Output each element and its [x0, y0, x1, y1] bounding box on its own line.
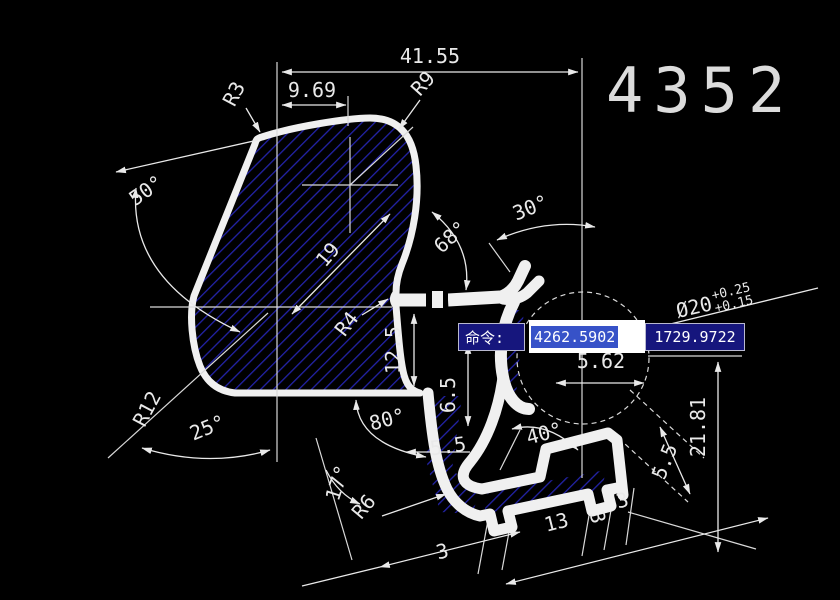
arc-25deg — [142, 448, 270, 459]
dim-80deg: 80° — [367, 403, 408, 436]
ext-2181-bottom — [628, 512, 756, 549]
leader-r3 — [246, 108, 260, 132]
leader-r6 — [382, 494, 446, 516]
dimline-3-left-ext — [302, 567, 380, 586]
dim-25deg: 25° — [186, 410, 228, 446]
dim-5-5: 5.5 — [428, 432, 467, 461]
arm-right — [448, 297, 500, 300]
dim-13: 13 — [542, 508, 571, 537]
command-prompt-label: 命令: — [458, 323, 525, 351]
leg-50deg — [116, 140, 258, 172]
dim-dia20-group: Ø20 +0.25 +0.15 — [673, 280, 754, 325]
dim-9-69: 9.69 — [288, 78, 336, 102]
command-x-input[interactable]: 4262.5902 — [529, 320, 645, 353]
cad-canvas[interactable]: 41.55 9.69 R3 R9 50° 68° 30° 19 R4 12.5 … — [0, 0, 840, 600]
dim-21-81: 21.81 — [686, 397, 710, 457]
leader-r9 — [399, 100, 420, 129]
cad-window: 41.55 9.69 R3 R9 50° 68° 30° 19 R4 12.5 … — [0, 0, 840, 600]
leg-40deg — [500, 430, 520, 470]
dim-68deg: 68° — [429, 216, 472, 258]
dim-41-55: 41.55 — [400, 44, 460, 68]
dim-30deg: 30° — [509, 190, 551, 226]
command-x-value[interactable]: 4262.5902 — [531, 326, 618, 348]
leg-30deg — [489, 243, 510, 272]
dim-dia20: Ø20 — [674, 291, 715, 323]
dim-50deg: 50° — [124, 170, 167, 210]
dim-3-right: 3 — [614, 487, 631, 513]
dimline-3-left — [380, 532, 520, 567]
dim-6-5: 6.5 — [436, 377, 460, 413]
drawing-number: 4352 — [606, 54, 795, 127]
dim-12-5: 12.5 — [381, 326, 405, 374]
dim-3-left: 3 — [434, 538, 451, 564]
ext-foot-1 — [478, 520, 488, 574]
command-y-value: 1729.9722 — [654, 328, 735, 346]
dim-5-5-right: 5.5 — [647, 440, 683, 482]
dim-r3: R3 — [218, 77, 251, 110]
dim-r12: R12 — [128, 387, 166, 430]
arm-break-square — [432, 291, 443, 308]
dim-r6: R6 — [347, 490, 381, 524]
command-y-input[interactable]: 1729.9722 — [645, 323, 745, 351]
arc-30deg — [497, 224, 595, 240]
